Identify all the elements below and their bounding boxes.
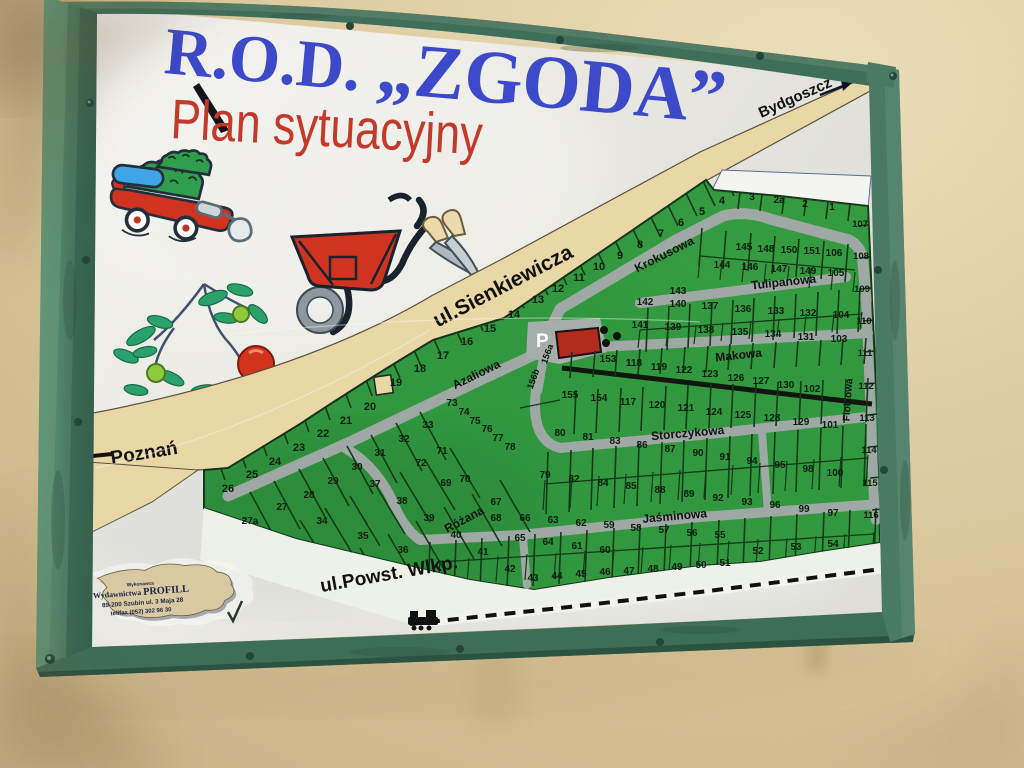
svg-text:84: 84 xyxy=(597,478,609,489)
svg-text:63: 63 xyxy=(547,515,559,526)
svg-text:155: 155 xyxy=(562,390,579,401)
svg-text:57: 57 xyxy=(658,525,670,536)
svg-text:131: 131 xyxy=(798,332,815,343)
svg-text:104: 104 xyxy=(833,310,850,321)
svg-text:32: 32 xyxy=(398,434,410,445)
svg-text:34: 34 xyxy=(316,516,328,527)
svg-text:126: 126 xyxy=(728,373,745,384)
svg-text:138: 138 xyxy=(698,325,715,336)
svg-text:45: 45 xyxy=(575,569,587,580)
svg-text:56: 56 xyxy=(686,528,698,539)
svg-text:23: 23 xyxy=(293,442,305,454)
svg-text:48: 48 xyxy=(647,564,659,575)
svg-text:148: 148 xyxy=(758,244,775,255)
svg-text:35: 35 xyxy=(357,531,369,542)
svg-text:101: 101 xyxy=(822,420,839,431)
svg-text:132: 132 xyxy=(800,308,817,319)
svg-text:119: 119 xyxy=(651,362,668,373)
svg-text:13: 13 xyxy=(532,294,544,306)
svg-text:92: 92 xyxy=(712,493,724,504)
svg-text:133: 133 xyxy=(768,306,785,317)
svg-text:130: 130 xyxy=(778,380,795,391)
svg-text:43: 43 xyxy=(527,573,539,584)
svg-text:76: 76 xyxy=(481,424,493,435)
svg-text:99: 99 xyxy=(798,504,810,515)
svg-text:105: 105 xyxy=(828,268,845,279)
svg-text:97: 97 xyxy=(827,508,839,519)
svg-text:140: 140 xyxy=(670,299,687,310)
svg-text:141: 141 xyxy=(632,320,649,331)
svg-text:17: 17 xyxy=(437,350,449,362)
svg-text:136: 136 xyxy=(735,304,752,315)
svg-text:122: 122 xyxy=(676,365,693,376)
svg-text:134: 134 xyxy=(765,329,782,340)
svg-text:128: 128 xyxy=(764,413,781,424)
svg-text:89: 89 xyxy=(683,489,695,500)
svg-text:139: 139 xyxy=(665,322,682,333)
svg-text:147: 147 xyxy=(771,264,788,275)
svg-text:18: 18 xyxy=(414,363,426,375)
svg-text:16: 16 xyxy=(461,336,473,348)
svg-text:80: 80 xyxy=(554,428,566,439)
svg-text:111: 111 xyxy=(858,348,874,359)
svg-text:52: 52 xyxy=(752,546,764,557)
svg-text:20: 20 xyxy=(364,401,376,413)
svg-text:123: 123 xyxy=(702,369,719,380)
svg-text:7: 7 xyxy=(658,228,664,240)
svg-text:24: 24 xyxy=(269,456,282,468)
svg-text:10: 10 xyxy=(593,261,605,273)
svg-text:26: 26 xyxy=(222,483,234,495)
svg-text:50: 50 xyxy=(695,560,707,571)
svg-text:12: 12 xyxy=(552,283,564,295)
svg-text:110: 110 xyxy=(856,316,871,327)
svg-text:115: 115 xyxy=(862,478,878,489)
svg-text:27: 27 xyxy=(276,502,288,513)
svg-text:78: 78 xyxy=(504,442,516,453)
svg-text:2a: 2a xyxy=(773,195,785,206)
svg-text:14: 14 xyxy=(508,309,521,321)
svg-text:125: 125 xyxy=(735,410,752,421)
svg-text:144: 144 xyxy=(714,260,731,271)
svg-text:71: 71 xyxy=(436,446,448,457)
svg-text:90: 90 xyxy=(692,448,704,459)
svg-text:77: 77 xyxy=(492,433,504,444)
svg-text:142: 142 xyxy=(637,297,654,308)
svg-text:121: 121 xyxy=(678,403,695,414)
svg-text:37: 37 xyxy=(369,479,381,490)
svg-text:42: 42 xyxy=(504,564,516,575)
svg-text:81: 81 xyxy=(582,432,594,443)
svg-text:6: 6 xyxy=(678,217,684,229)
svg-text:102: 102 xyxy=(804,384,821,395)
svg-text:33: 33 xyxy=(422,420,434,431)
svg-text:65: 65 xyxy=(514,533,526,544)
svg-text:9: 9 xyxy=(617,250,623,262)
svg-text:44: 44 xyxy=(551,571,563,582)
svg-text:154: 154 xyxy=(591,393,608,404)
svg-text:58: 58 xyxy=(630,523,642,534)
svg-text:83: 83 xyxy=(609,436,621,447)
svg-text:75: 75 xyxy=(469,416,481,427)
svg-text:19: 19 xyxy=(390,377,402,389)
svg-text:64: 64 xyxy=(542,537,554,548)
svg-text:106: 106 xyxy=(826,248,843,259)
svg-text:11: 11 xyxy=(573,272,585,284)
svg-text:4: 4 xyxy=(719,195,726,207)
svg-text:120: 120 xyxy=(649,400,666,411)
svg-text:153: 153 xyxy=(600,354,617,365)
svg-text:59: 59 xyxy=(603,520,615,531)
svg-text:103: 103 xyxy=(831,334,848,345)
svg-text:94: 94 xyxy=(746,456,758,467)
svg-text:28: 28 xyxy=(303,490,315,501)
svg-text:150: 150 xyxy=(781,245,798,256)
svg-text:93: 93 xyxy=(741,497,753,508)
svg-text:96: 96 xyxy=(769,500,781,511)
svg-text:46: 46 xyxy=(599,567,611,578)
svg-text:118: 118 xyxy=(626,358,643,369)
svg-text:137: 137 xyxy=(702,301,719,312)
svg-text:21: 21 xyxy=(340,415,352,427)
svg-text:8: 8 xyxy=(637,239,643,251)
svg-text:60: 60 xyxy=(599,545,611,556)
svg-text:86: 86 xyxy=(636,440,648,451)
svg-text:113: 113 xyxy=(859,413,874,424)
svg-text:55: 55 xyxy=(714,530,726,541)
svg-text:129: 129 xyxy=(793,417,810,428)
svg-text:79: 79 xyxy=(539,470,551,481)
svg-text:117: 117 xyxy=(620,397,637,408)
svg-text:54: 54 xyxy=(827,539,839,550)
svg-text:124: 124 xyxy=(706,407,723,418)
svg-text:66: 66 xyxy=(519,513,531,524)
svg-text:30: 30 xyxy=(351,462,363,473)
svg-text:47: 47 xyxy=(623,566,635,577)
svg-text:91: 91 xyxy=(719,452,731,463)
svg-text:73: 73 xyxy=(446,398,458,409)
svg-text:70: 70 xyxy=(459,474,471,485)
svg-text:87: 87 xyxy=(664,444,676,455)
svg-text:100: 100 xyxy=(827,468,844,479)
svg-text:146: 146 xyxy=(742,262,759,273)
svg-text:108: 108 xyxy=(853,251,869,262)
svg-text:61: 61 xyxy=(571,541,583,552)
svg-text:49: 49 xyxy=(671,562,683,573)
svg-text:15: 15 xyxy=(484,323,496,335)
svg-text:109: 109 xyxy=(854,284,870,295)
svg-text:74: 74 xyxy=(458,407,470,418)
svg-text:98: 98 xyxy=(802,464,814,475)
svg-text:85: 85 xyxy=(625,481,637,492)
svg-text:143: 143 xyxy=(670,286,687,297)
svg-text:39: 39 xyxy=(423,513,435,524)
svg-text:38: 38 xyxy=(396,496,408,507)
svg-text:31: 31 xyxy=(374,448,386,459)
svg-text:68: 68 xyxy=(490,513,502,524)
svg-text:116: 116 xyxy=(863,510,878,521)
svg-text:41: 41 xyxy=(477,547,489,558)
svg-text:72: 72 xyxy=(415,458,427,469)
svg-text:51: 51 xyxy=(719,558,731,569)
svg-text:151: 151 xyxy=(804,246,821,257)
svg-text:2: 2 xyxy=(802,199,808,210)
svg-text:5: 5 xyxy=(699,206,705,218)
svg-text:1: 1 xyxy=(829,202,835,213)
svg-text:29: 29 xyxy=(327,476,339,487)
svg-text:114: 114 xyxy=(861,445,877,456)
svg-text:95: 95 xyxy=(774,460,786,471)
svg-text:107: 107 xyxy=(852,219,868,230)
svg-text:67: 67 xyxy=(490,497,502,508)
svg-text:112: 112 xyxy=(858,381,873,392)
svg-text:82: 82 xyxy=(568,474,580,485)
svg-text:145: 145 xyxy=(736,242,753,253)
svg-text:88: 88 xyxy=(654,485,666,496)
svg-text:53: 53 xyxy=(790,542,802,553)
svg-text:3: 3 xyxy=(749,192,755,203)
svg-text:27a: 27a xyxy=(242,516,259,527)
svg-text:36: 36 xyxy=(397,545,409,556)
svg-text:25: 25 xyxy=(246,469,258,481)
svg-text:127: 127 xyxy=(753,376,770,387)
svg-text:22: 22 xyxy=(317,428,329,440)
svg-text:62: 62 xyxy=(575,518,587,529)
svg-text:135: 135 xyxy=(732,327,749,338)
svg-text:69: 69 xyxy=(440,478,452,489)
